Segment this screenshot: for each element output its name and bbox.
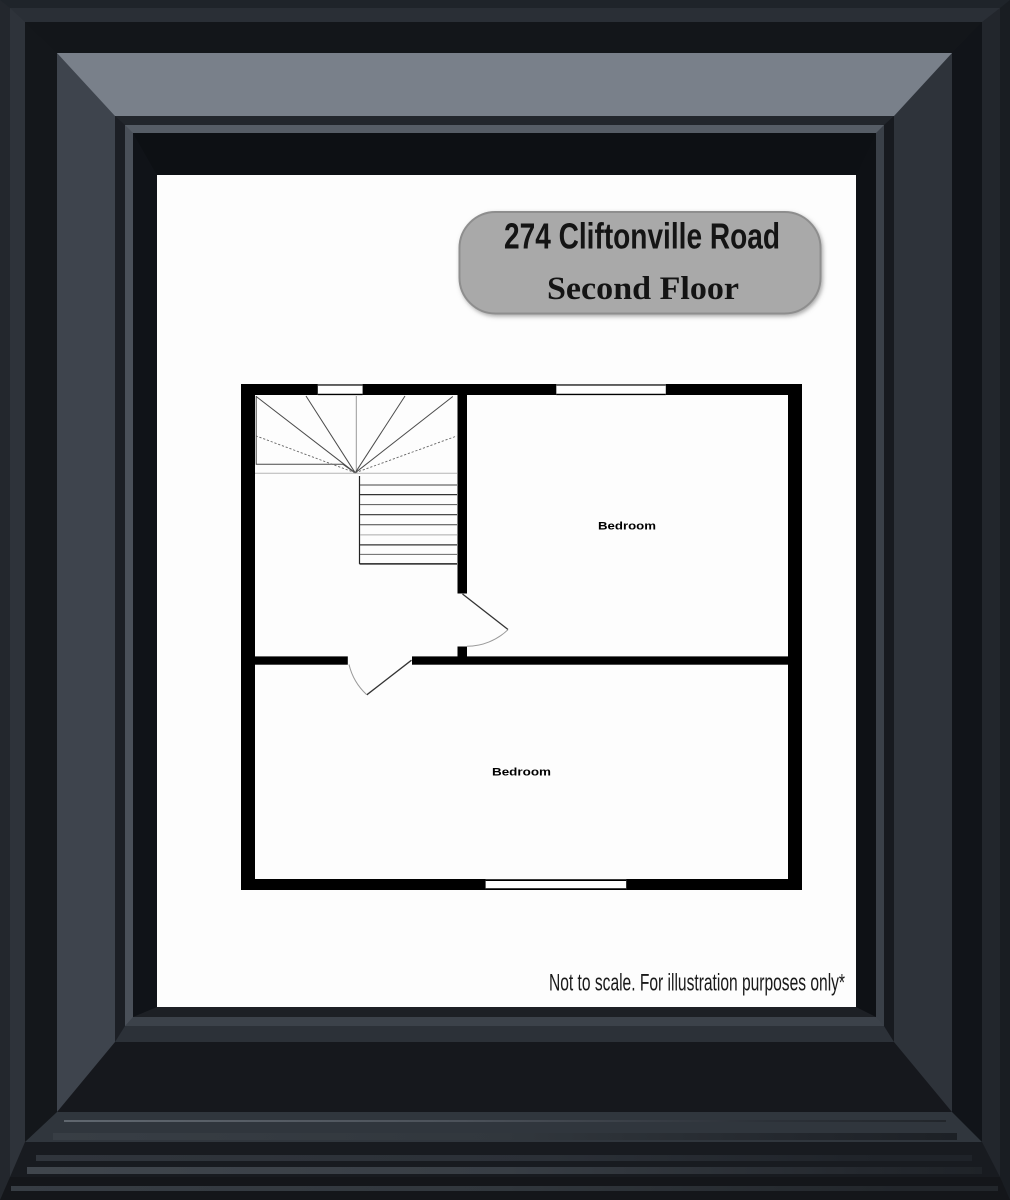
svg-text:Second Floor: Second Floor xyxy=(547,271,739,307)
svg-text:Bedroom: Bedroom xyxy=(598,521,656,533)
svg-text:Not to scale. For illustration: Not to scale. For illustration purposes … xyxy=(549,969,845,996)
svg-text:Bedroom: Bedroom xyxy=(492,767,551,779)
svg-text:274 Cliftonville Road: 274 Cliftonville Road xyxy=(504,216,780,257)
